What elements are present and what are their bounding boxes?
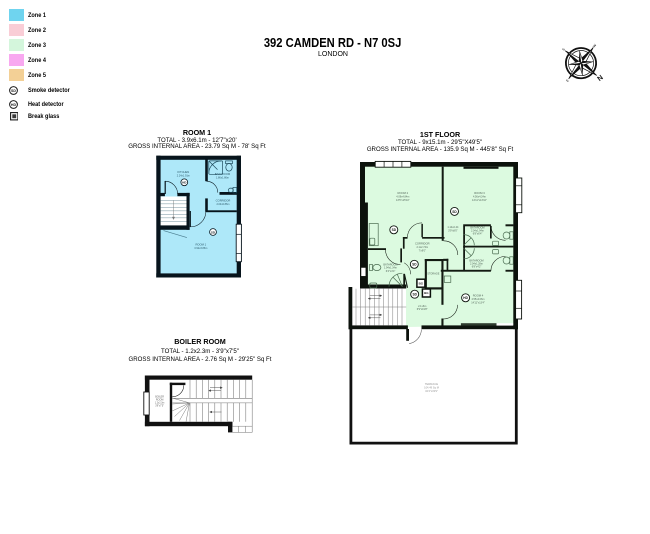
svg-text:SD: SD — [412, 293, 417, 297]
svg-text:6'8"x4'2": 6'8"x4'2" — [472, 266, 482, 269]
svg-text:14'11"x13'4": 14'11"x13'4" — [471, 301, 485, 304]
svg-text:6'4"x4'4": 6'4"x4'4" — [386, 270, 396, 273]
svg-text:6'9"x19'8": 6'9"x19'8" — [417, 308, 428, 311]
svg-text:W: W — [592, 43, 598, 49]
svg-text:2.04x0.86m: 2.04x0.86m — [216, 203, 229, 206]
svg-text:ROOM 1: ROOM 1 — [195, 243, 206, 247]
svg-text:BG: BG — [419, 281, 424, 285]
svg-text:1.2x2.3m: 1.2x2.3m — [155, 403, 165, 405]
svg-text:CORRIDOR: CORRIDOR — [216, 199, 231, 203]
svg-text:3'9"x7'5": 3'9"x7'5" — [155, 406, 164, 408]
svg-text:SD: SD — [452, 210, 457, 214]
svg-text:13'5"x15'10": 13'5"x15'10" — [396, 199, 410, 202]
svg-text:BG: BG — [424, 291, 429, 295]
svg-text:ROOM 4: ROOM 4 — [473, 294, 484, 298]
svg-text:34'4"x33'9": 34'4"x33'9" — [425, 389, 438, 393]
svg-text:HD: HD — [463, 296, 468, 300]
svg-text:SD: SD — [392, 228, 397, 232]
svg-text:SD: SD — [11, 89, 16, 93]
svg-text:E: E — [565, 78, 570, 83]
svg-text:3'9"x8'0": 3'9"x8'0" — [448, 229, 458, 232]
svg-text:14'11"x13'10": 14'11"x13'10" — [472, 199, 487, 202]
svg-text:BATHROOM: BATHROOM — [215, 172, 231, 176]
svg-text:SD: SD — [412, 263, 417, 267]
svg-text:TERRACE: TERRACE — [425, 382, 438, 386]
svg-text:ROOM 2: ROOM 2 — [397, 191, 408, 195]
svg-text:HD: HD — [11, 103, 17, 107]
svg-text:N: N — [596, 74, 604, 83]
svg-text:ROOM: ROOM — [156, 399, 163, 402]
svg-text:KITCHEN: KITCHEN — [177, 170, 189, 174]
svg-text:1.86x1.86m: 1.86x1.86m — [216, 176, 229, 179]
svg-text:104.49 Sq M: 104.49 Sq M — [424, 385, 439, 389]
svg-text:7'x9'0": 7'x9'0" — [419, 249, 426, 252]
svg-text:STORAGE: STORAGE — [427, 272, 440, 275]
svg-text:CORRIDOR: CORRIDOR — [415, 242, 430, 246]
svg-text:6'8"x6'4": 6'8"x6'4" — [473, 233, 483, 236]
svg-text:2.24x1.91m: 2.24x1.91m — [177, 174, 190, 177]
svg-text:ROOM 3: ROOM 3 — [474, 191, 485, 195]
svg-text:3.92x3.86m: 3.92x3.86m — [194, 247, 207, 250]
